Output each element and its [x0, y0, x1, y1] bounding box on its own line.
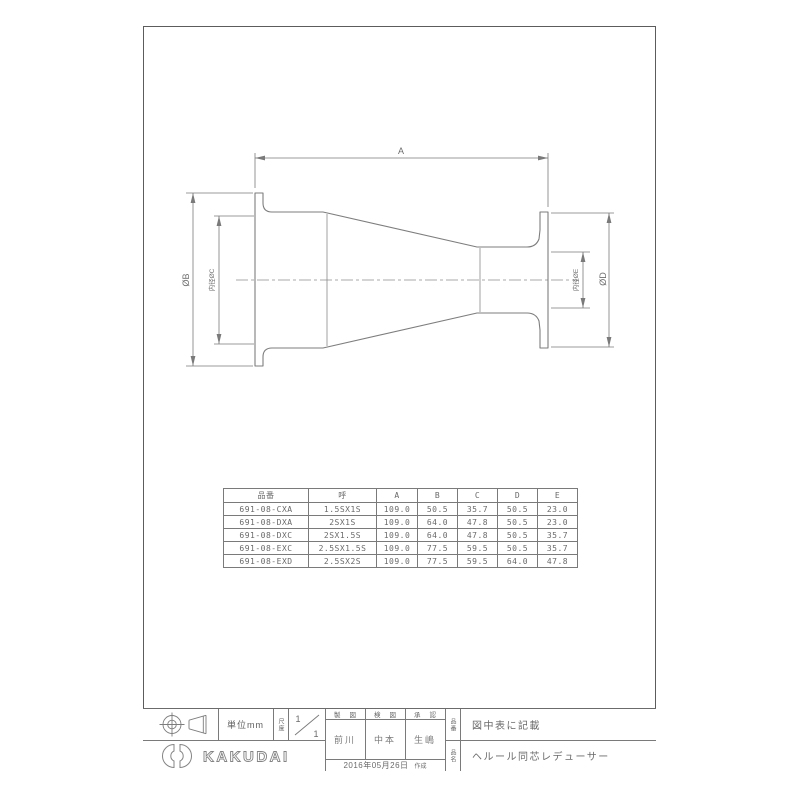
cell-e: 47.8 [538, 555, 578, 568]
reducer-outline [255, 193, 548, 366]
cell-c: 35.7 [458, 503, 498, 516]
cell-e: 35.7 [538, 529, 578, 542]
cell-b: 50.5 [418, 503, 458, 516]
dim-label-a: A [398, 146, 404, 156]
dimension-a [255, 153, 548, 207]
kakudai-logo-text: KAKUDAI [203, 749, 290, 766]
cell-c: 59.5 [458, 542, 498, 555]
kakudai-logo: KAKUDAI [143, 740, 325, 771]
cell-b: 64.0 [418, 529, 458, 542]
table-row: 691-08-EXD 2.5SX2S 109.0 77.5 59.5 64.0 … [224, 555, 578, 568]
col-header-size: 呼 [309, 489, 377, 503]
cell-c: 59.5 [458, 555, 498, 568]
cell-d: 50.5 [498, 503, 538, 516]
product-name-value: ヘルール同芯レデューサー [460, 740, 656, 771]
cell-a: 109.0 [377, 529, 418, 542]
scale-denominator: 1 [313, 729, 318, 739]
dim-label-d: ØD [598, 272, 608, 286]
cell-a: 109.0 [377, 542, 418, 555]
cell-size: 2.5SX1.5S [309, 542, 377, 555]
creation-date-cell: 2016年05月26日 作成 [325, 759, 445, 771]
cell-b: 64.0 [418, 516, 458, 529]
drafted-header: 製図 [325, 709, 365, 719]
cell-part-no: 691-08-EXD [224, 555, 309, 568]
cell-d: 50.5 [498, 529, 538, 542]
part-no-label: 品番 [445, 709, 460, 740]
dim-label-b: ØB [181, 273, 191, 286]
col-header-e: E [538, 489, 578, 503]
unit-cell: 単位mm [218, 709, 273, 740]
table-row: 691-08-DXA 2SX1S 109.0 64.0 47.8 50.5 23… [224, 516, 578, 529]
cell-part-no: 691-08-DXA [224, 516, 309, 529]
cell-part-no: 691-08-DXC [224, 529, 309, 542]
dimension-table: 品番 呼 A B C D E 691-08-CXA 1.5SX1S 109.0 … [223, 488, 578, 568]
cell-size: 2.5SX2S [309, 555, 377, 568]
cell-c: 47.8 [458, 516, 498, 529]
cell-size: 2SX1.5S [309, 529, 377, 542]
drawing-sheet-page: { "drawing": { "dim_a": "A", "dim_b": "Ø… [0, 0, 800, 800]
third-angle-projection-icon [143, 709, 218, 740]
cell-c: 47.8 [458, 529, 498, 542]
approved-header: 承認 [405, 709, 445, 719]
scale-numerator: 1 [295, 714, 300, 724]
scale-value: 1 1 [288, 709, 325, 740]
drafted-name-stamp: 前川 [325, 719, 365, 759]
approved-name-stamp: 生嶋 [405, 719, 445, 759]
col-header-a: A [377, 489, 418, 503]
col-header-c: C [458, 489, 498, 503]
cell-part-no: 691-08-EXC [224, 542, 309, 555]
dim-label-c: 内径ØC [207, 268, 216, 291]
cell-b: 77.5 [418, 555, 458, 568]
creation-date: 2016年05月26日 [343, 760, 408, 771]
cell-size: 2SX1S [309, 516, 377, 529]
cell-size: 1.5SX1S [309, 503, 377, 516]
dim-label-e: 内径ØE [571, 268, 580, 291]
cell-e: 35.7 [538, 542, 578, 555]
cell-d: 50.5 [498, 516, 538, 529]
table-header-row: 品番 呼 A B C D E [224, 489, 578, 503]
reducer-drawing-canvas: A ØB 内径ØC ØD 内径ØE [140, 140, 640, 380]
dimension-b [186, 193, 253, 366]
cell-b: 77.5 [418, 542, 458, 555]
table-row: 691-08-DXC 2SX1.5S 109.0 64.0 47.8 50.5 … [224, 529, 578, 542]
title-block: 単位mm 尺度 1 1 製図 検図 承認 前川 中本 生嶋 2016年05月26… [143, 708, 656, 770]
cell-a: 109.0 [377, 503, 418, 516]
kakudai-logo-icon [163, 745, 192, 768]
cell-e: 23.0 [538, 503, 578, 516]
cell-a: 109.0 [377, 516, 418, 529]
table-row: 691-08-EXC 2.5SX1.5S 109.0 77.5 59.5 50.… [224, 542, 578, 555]
part-no-value: 図中表に記載 [460, 709, 656, 740]
table-row: 691-08-CXA 1.5SX1S 109.0 50.5 35.7 50.5 … [224, 503, 578, 516]
cell-e: 23.0 [538, 516, 578, 529]
checked-header: 検図 [365, 709, 405, 719]
created-label: 作成 [415, 761, 427, 770]
scale-label: 尺度 [273, 709, 288, 740]
product-name-label: 品名 [445, 740, 460, 771]
col-header-part-no: 品番 [224, 489, 309, 503]
cell-part-no: 691-08-CXA [224, 503, 309, 516]
cell-d: 64.0 [498, 555, 538, 568]
checked-name-stamp: 中本 [365, 719, 405, 759]
sheet-border-frame [143, 26, 656, 770]
col-header-d: D [498, 489, 538, 503]
col-header-b: B [418, 489, 458, 503]
cell-d: 50.5 [498, 542, 538, 555]
cell-a: 109.0 [377, 555, 418, 568]
